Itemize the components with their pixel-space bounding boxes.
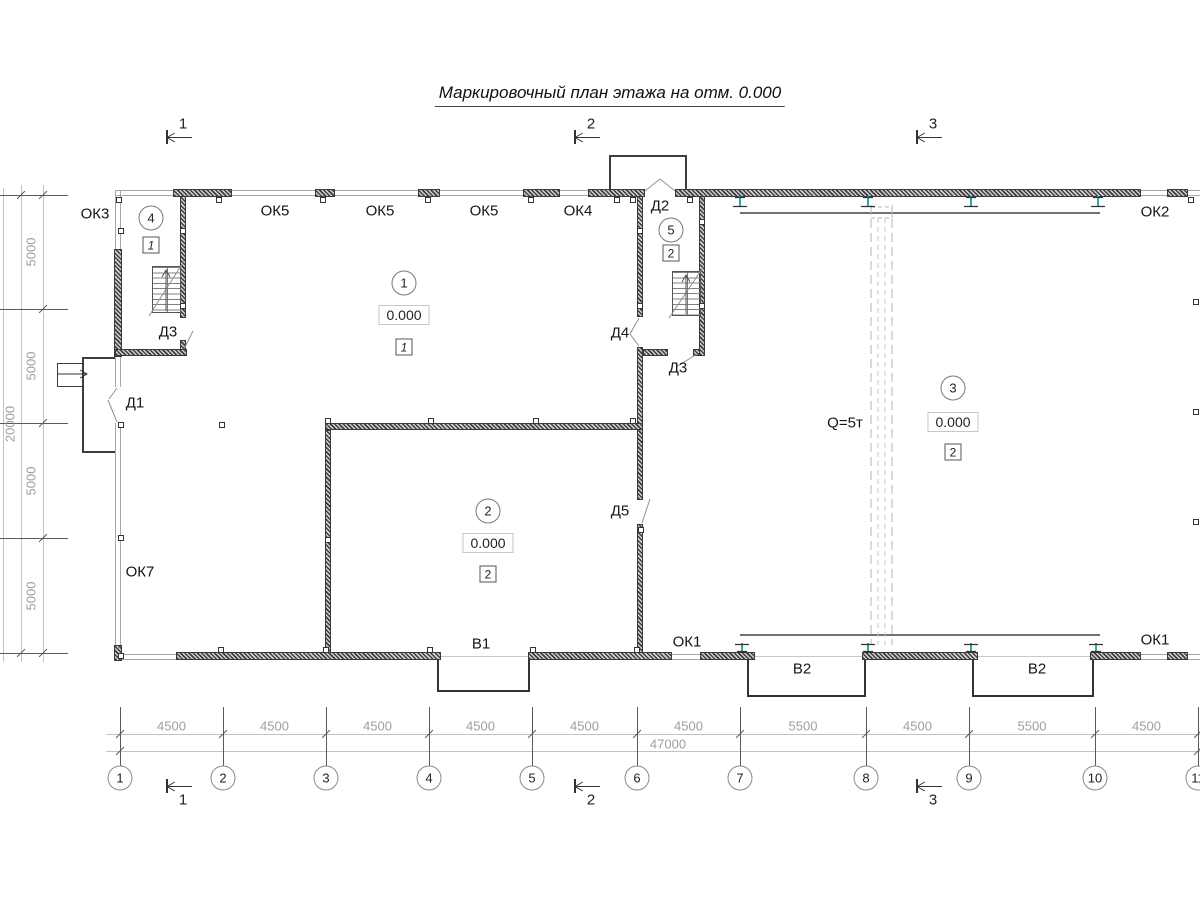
plan-label: ОК3: [81, 206, 110, 223]
dim-total-text: 47000: [650, 737, 686, 752]
dim-text: 4500: [674, 719, 703, 734]
column-mark: [219, 422, 225, 428]
plan-label: ОК5: [470, 203, 499, 220]
plan-label: В1: [472, 636, 490, 653]
column-mark: [687, 197, 693, 203]
dim-text: 4500: [570, 719, 599, 734]
wall-pier: [418, 189, 440, 197]
column-mark: [425, 197, 431, 203]
floor-type-mark: 1: [396, 339, 413, 356]
elevation-mark: 0.000: [927, 412, 978, 432]
column-mark: [614, 197, 620, 203]
axis-bubble: 8: [854, 766, 879, 791]
elevation-mark: 0.000: [378, 305, 429, 325]
partition-wall: [637, 524, 643, 653]
column-mark: [699, 219, 705, 225]
axis-tick: [0, 538, 68, 539]
plan-label: ОК5: [261, 203, 290, 220]
dim-text: 5500: [789, 719, 818, 734]
column-mark: [630, 197, 636, 203]
column-mark: [530, 647, 536, 653]
column-mark: [1193, 519, 1199, 525]
column-mark: [1193, 299, 1199, 305]
dim-text: 5000: [24, 466, 39, 495]
dim-text: 4500: [260, 719, 289, 734]
column-mark: [533, 418, 539, 424]
dim-line: [106, 734, 1200, 735]
steel-column-flanges: [733, 198, 1105, 652]
column-mark: [118, 228, 124, 234]
floor-type-mark: 1: [143, 237, 160, 254]
plan-label: Д1: [126, 395, 145, 412]
plan-label: В2: [793, 661, 811, 678]
dim-text: 5000: [24, 581, 39, 610]
plan-label: Д4: [611, 325, 630, 342]
plan-label: Д3: [159, 324, 178, 341]
axis-tick: [120, 707, 121, 767]
dim-text: 4500: [157, 719, 186, 734]
column-mark: [116, 197, 122, 203]
axis-bubble: 4: [417, 766, 442, 791]
floor-type-mark: 2: [663, 245, 680, 262]
dim-text: 4500: [903, 719, 932, 734]
wall-pier: [675, 189, 1141, 197]
column-mark: [118, 422, 124, 428]
axis-tick: [866, 707, 867, 767]
room2-wall: [325, 423, 643, 430]
entrance-vestibule: [82, 357, 115, 453]
axis-tick: [0, 653, 68, 654]
plan-label: ОК2: [1141, 204, 1170, 221]
column-mark: [320, 197, 326, 203]
plan-label: Д5: [611, 503, 630, 520]
stairwell-wall: [115, 349, 187, 356]
drawing-title: Маркировочный план этажа на отм. 0.000: [435, 83, 785, 107]
column-mark: [637, 303, 643, 309]
crane-beam-lines: [740, 213, 1100, 635]
plan-label: Д3: [669, 360, 688, 377]
partition-wall: [637, 196, 643, 317]
column-mark: [638, 527, 644, 533]
plan-label: ОК4: [564, 203, 593, 220]
axis-bubble: 10: [1083, 766, 1108, 791]
plan-label: В2: [1028, 661, 1046, 678]
axis-bubble: 1: [108, 766, 133, 791]
gate-apron-v1: [437, 660, 530, 692]
axis-tick: [740, 707, 741, 767]
floor-plan-drawing: Маркировочный план этажа на отм. 0.000: [0, 0, 1200, 900]
axis-tick: [637, 707, 638, 767]
elevation-mark: 0.000: [462, 533, 513, 553]
stairwell-wall: [643, 349, 668, 356]
axis-tick: [429, 707, 430, 767]
gate-threshold: [978, 656, 1090, 657]
axis-tick: [0, 309, 68, 310]
column-mark: [699, 303, 705, 309]
dim-text: 5000: [24, 238, 39, 267]
column-mark: [630, 418, 636, 424]
column-mark: [428, 418, 434, 424]
plan-label: ОК1: [1141, 632, 1170, 649]
dim-text: 4500: [363, 719, 392, 734]
column-mark: [634, 647, 640, 653]
dim-total-text: 20000: [3, 406, 18, 442]
axis-bubble: 6: [625, 766, 650, 791]
column-mark: [323, 647, 329, 653]
entrance-vestibule: [609, 155, 687, 190]
column-mark: [118, 535, 124, 541]
column-mark: [427, 647, 433, 653]
room-number-circle: 2: [476, 499, 501, 524]
entrance-porch: [57, 363, 82, 387]
plan-label: ОК5: [366, 203, 395, 220]
axis-bubble: 11: [1186, 766, 1200, 791]
column-mark: [180, 228, 186, 234]
room-number-circle: 5: [659, 218, 684, 243]
dim-text: 5500: [1018, 719, 1047, 734]
floor-type-mark: 2: [945, 444, 962, 461]
dim-text: 4500: [1132, 719, 1161, 734]
plan-label: ОК7: [126, 564, 155, 581]
wall-pier: [1090, 652, 1141, 660]
stair-flight: [672, 271, 701, 316]
section-number: 1: [179, 792, 187, 809]
axis-bubble: 2: [211, 766, 236, 791]
wall-pier: [1167, 189, 1188, 197]
left-wall-strip: [115, 423, 121, 660]
room-number-circle: 4: [139, 206, 164, 231]
wall-pier: [315, 189, 335, 197]
axis-bubble: 9: [957, 766, 982, 791]
column-mark: [325, 418, 331, 424]
axis-tick: [1198, 707, 1199, 767]
axis-bubble: 7: [728, 766, 753, 791]
axis-tick: [532, 707, 533, 767]
dim-text: 5000: [24, 352, 39, 381]
section-number: 1: [179, 116, 187, 133]
wall-pier: [862, 652, 978, 660]
wall-pier: [700, 652, 755, 660]
column-mark: [1188, 197, 1194, 203]
room-number-circle: 1: [392, 271, 417, 296]
column-mark: [216, 197, 222, 203]
axis-tick: [0, 195, 68, 196]
axis-tick: [223, 707, 224, 767]
column-mark: [1193, 409, 1199, 415]
section-number: 2: [587, 116, 595, 133]
section-number: 3: [929, 792, 937, 809]
wall-pier: [176, 652, 441, 660]
column-mark: [218, 647, 224, 653]
section-number: 3: [929, 116, 937, 133]
room-number-circle: 3: [941, 376, 966, 401]
dim-text: 4500: [466, 719, 495, 734]
axis-tick: [1095, 707, 1096, 767]
column-mark: [118, 653, 124, 659]
wall-pier: [528, 652, 672, 660]
wall-pier: [1167, 652, 1188, 660]
axis-tick: [969, 707, 970, 767]
column-mark: [180, 303, 186, 309]
floor-type-mark: 2: [480, 566, 497, 583]
stair-flight: [152, 266, 181, 313]
section-number: 2: [587, 792, 595, 809]
gate-threshold: [755, 656, 862, 657]
axis-bubble: 3: [314, 766, 339, 791]
gate-threshold: [441, 656, 528, 657]
steel-column-stems: [740, 196, 1098, 652]
crane-runway-dashed: [871, 205, 892, 645]
axis-bubble: 5: [520, 766, 545, 791]
axis-tick: [326, 707, 327, 767]
wall-pier: [114, 249, 122, 357]
column-mark: [528, 197, 534, 203]
wall-pier: [523, 189, 560, 197]
column-mark: [637, 228, 643, 234]
plan-label: Д2: [651, 198, 670, 215]
linework-layer: [0, 0, 1200, 900]
plan-label: ОК1: [673, 634, 702, 651]
column-mark: [325, 537, 331, 543]
crane-hook-dashed: [878, 218, 885, 645]
plan-label: Q=5т: [827, 415, 863, 432]
